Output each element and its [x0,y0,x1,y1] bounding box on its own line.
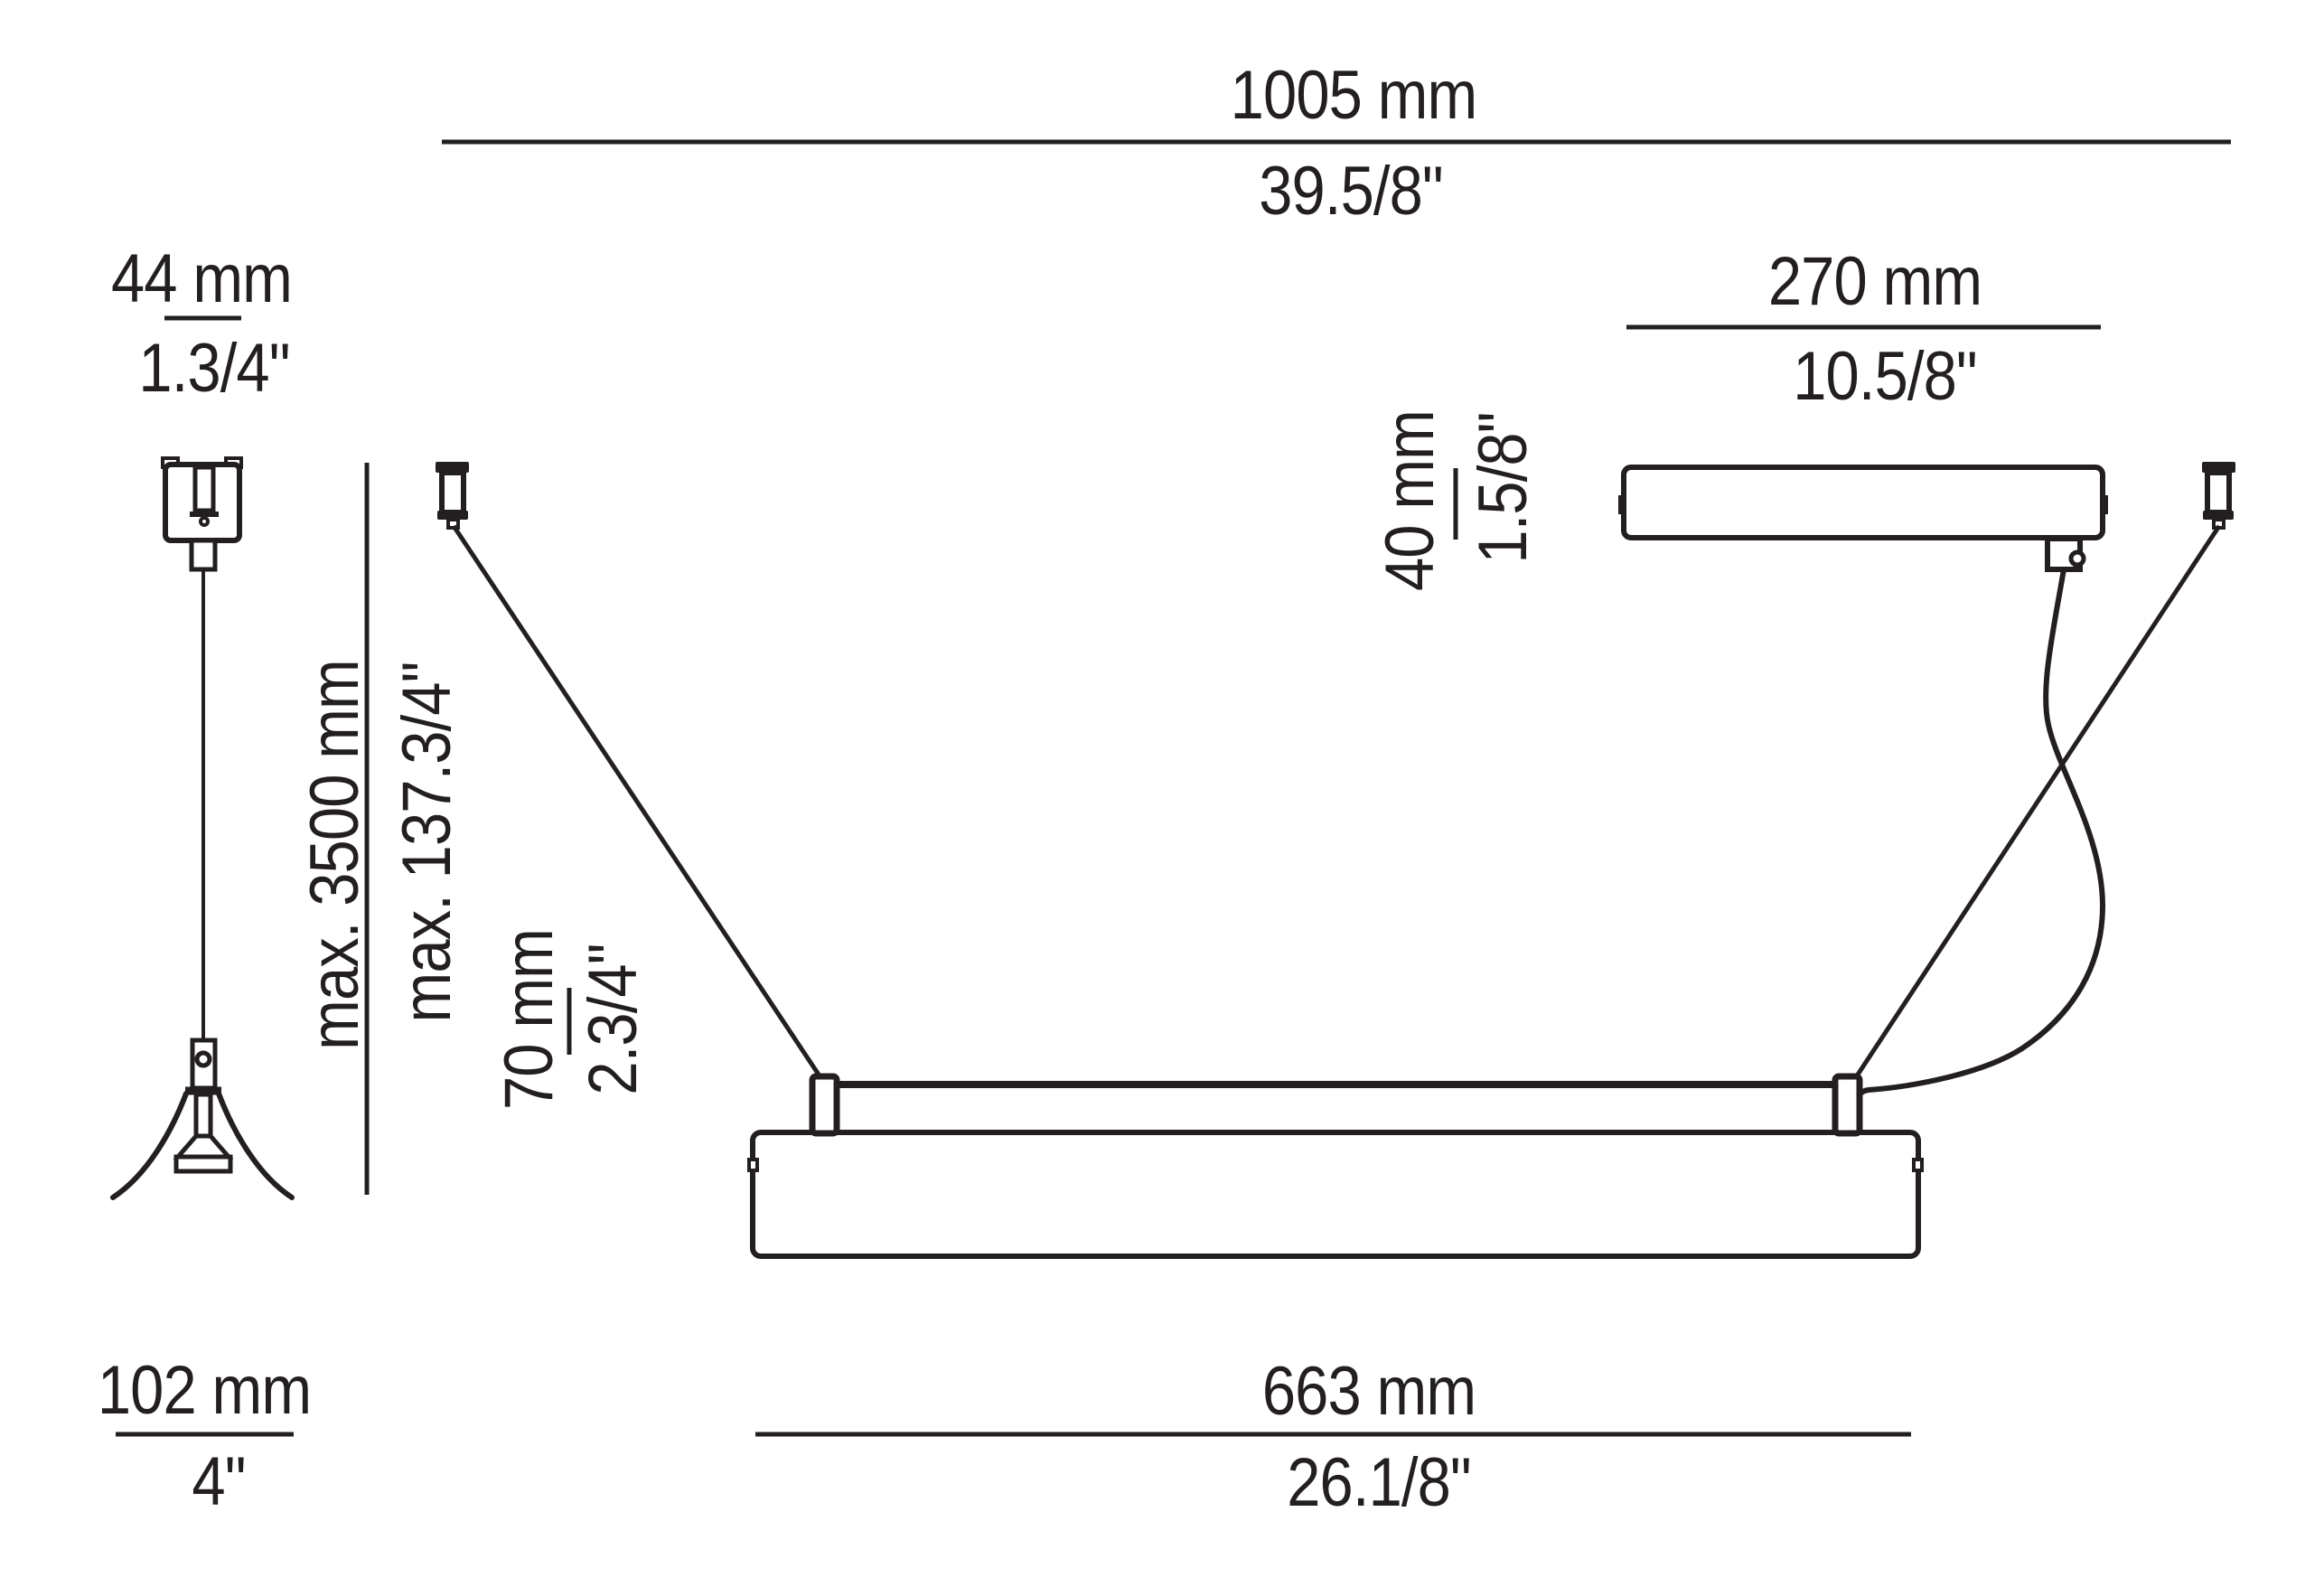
gripper-foot [176,1157,230,1171]
cup-inner-stem [195,467,213,511]
label-shade-width-mm: 102 mm [98,1357,311,1425]
canopy-body [1624,467,2103,538]
label-overall-width-inch: 39.5/8" [1259,157,1443,226]
gripper-funnel [178,1136,229,1157]
suspension-cable-right [1856,526,2219,1077]
label-body-height-inch: 2.3/4" [579,944,648,1094]
label-canopy-width-mm: 270 mm [1768,248,1982,316]
label-canopy-height-inch: 1.5/8" [1469,412,1538,563]
label-gripper-width-inch: 1.3/4" [138,334,289,403]
label-canopy-height-mm: 40 mm [1376,410,1445,591]
gripper-wheel [197,1053,210,1066]
label-body-height-mm: 70 mm [495,929,564,1110]
label-suspension-length-mm: max. 3500 mm [301,660,370,1050]
ceiling-canopy [1620,467,2106,569]
gripper-neck [196,1094,211,1136]
cable-clamp-right [1835,1076,1860,1133]
luminaire [749,1076,1922,1256]
shade-profile-left [113,1094,186,1197]
label-overall-width-mm: 1005 mm [1231,61,1477,130]
luminaire-body [753,1132,1918,1256]
label-body-width-mm: 663 mm [1262,1357,1476,1426]
anchor-left-body [442,473,464,512]
label-canopy-width-inch: 10.5/8" [1793,343,1977,411]
dimension-drawing: 1005 mm 39.5/8" 44 mm 1.3/4" 270 mm 10.5… [0,0,2324,1587]
shade-profile-right [219,1094,292,1197]
cup-lower-stem [192,540,215,569]
cable-clamp-left [812,1076,837,1133]
suspension-detail-drawing [113,458,292,1197]
label-body-width-inch: 26.1/8" [1287,1449,1471,1517]
label-gripper-width-mm: 44 mm [111,245,292,314]
suspension-cables [454,526,2219,1077]
cord-exit-ring [2071,552,2084,565]
body-seam-left [749,1160,757,1170]
anchor-right-body [2207,473,2229,512]
label-shade-width-inch: 4" [192,1448,245,1517]
label-suspension-length-inch: max. 137.3/4" [393,662,462,1023]
body-seam-right [1914,1160,1922,1170]
cup-stem-ball [201,518,208,525]
